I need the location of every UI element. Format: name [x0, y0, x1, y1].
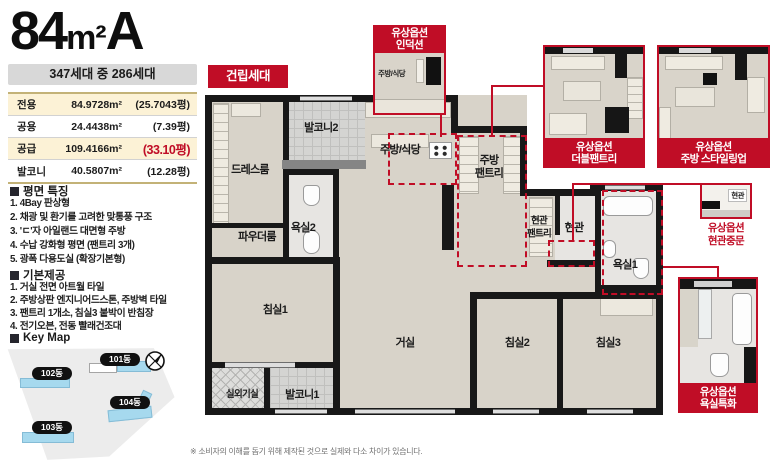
option-panel-induction: 유상옵션 인덕션 주방/식당 [373, 25, 446, 115]
area-value: 24.4438m² [61, 121, 122, 133]
wall [555, 195, 560, 235]
room-label-bath2: 욕실2 [291, 222, 315, 235]
section-bullet-icon [10, 271, 19, 280]
option-thumbnail: 현관 [702, 185, 750, 217]
wall [333, 257, 340, 415]
area-label: 공급 [8, 141, 61, 156]
wall [470, 292, 477, 415]
table-row: 공급 109.4166m² (33.10평) [8, 138, 197, 160]
wall [211, 223, 283, 228]
building-pill-103: 103동 [32, 421, 72, 434]
list-item: 2. 주방상판 엔지니어드스톤, 주방벽 타일 [10, 294, 167, 307]
wall [264, 368, 270, 415]
window [225, 362, 295, 368]
key-map: 101동 102동 104동 103동 [6, 347, 178, 461]
option-thumbnail [545, 47, 643, 140]
unit-type: A [106, 1, 143, 61]
area-label: 발코니 [8, 164, 61, 179]
building-pill-102: 102동 [32, 367, 72, 380]
thumb-shower [698, 289, 712, 339]
option-label-line1: 유상옵션 [543, 141, 645, 154]
option-label-line2: 욕실특화 [678, 398, 758, 411]
list-item: 5. 광폭 다용도실 (확장기본형) [10, 253, 152, 267]
disclaimer-text: ※ 소비자의 이해를 돕기 위해 제작된 것으로 실제와 다소 차이가 있습니다… [190, 446, 422, 457]
room-label-bed1: 침실1 [263, 304, 287, 317]
list-item: 3. 'ㄷ'자 아일랜드 대면형 주방 [10, 225, 152, 239]
built-households-label: 건립세대 [208, 65, 288, 88]
thumb-wall [615, 54, 627, 78]
option-panel-double-pantry: 유상옵션 더블팬트리 [543, 45, 645, 168]
option-label-line2: 주방 스타일링업 [657, 153, 770, 166]
option-label-middle-door: 유상옵션 현관중문 [684, 222, 768, 247]
building-pill-104: 104동 [110, 396, 150, 409]
area-label: 전용 [8, 97, 61, 112]
thumb-toilet [710, 353, 729, 377]
option-label-line1: 유상옵션 [657, 141, 770, 154]
thumb-floor [702, 210, 750, 217]
thumb-furniture [747, 77, 765, 113]
thumb-furniture [659, 107, 671, 140]
area-label: 공용 [8, 119, 61, 134]
room-label-kitchen: 주방/식당 [380, 144, 420, 157]
thumb-wall [735, 54, 747, 80]
thumb-wall [744, 347, 756, 385]
option-panel-styling-up: 유상옵션 주방 스타일링업 [657, 45, 770, 168]
building-pill-101: 101동 [100, 353, 140, 366]
thumb-counter [665, 56, 723, 70]
connector-line [663, 266, 719, 268]
connector-line [491, 85, 493, 137]
wall [557, 292, 563, 415]
dressroom-closet [231, 103, 261, 117]
thumb-window [679, 48, 711, 53]
area-pyeong-highlight: (33.10평) [122, 139, 197, 158]
wall [283, 169, 339, 175]
thumb-window [694, 281, 732, 287]
room-label-balcony2: 발코니2 [304, 122, 338, 135]
option-panel-middle-door: 현관 [700, 183, 752, 219]
thumb-bathtub [732, 293, 752, 345]
unit-size: 84 [10, 1, 66, 61]
table-row: 공용 24.4438m² (7.39평) [8, 116, 197, 138]
area-value: 109.4166m² [61, 143, 122, 155]
area-value: 84.9728m² [61, 99, 122, 111]
room-label-balcony1: 발코니1 [285, 389, 319, 402]
thumb-pantry-shelf [627, 77, 643, 119]
option-label: 유상옵션 주방 스타일링업 [657, 138, 770, 168]
option-thumbnail: 주방/식당 [375, 53, 444, 113]
option-label-line2: 인덕션 [373, 39, 446, 52]
option-label: 유상옵션 욕실특화 [678, 383, 758, 413]
unit-sqm: m² [66, 19, 106, 57]
option-label: 유상옵션 인덕션 [373, 25, 446, 53]
thumb-wall [545, 47, 643, 54]
keymap-title: Key Map [23, 332, 70, 344]
table-row: 전용 84.9728m² (25.7043평) [8, 94, 197, 116]
window [300, 96, 352, 101]
room-label-bed3: 침실3 [596, 337, 620, 350]
thumb-island [563, 81, 601, 101]
thumb-label: 현관 [728, 189, 747, 202]
thumb-counter [551, 56, 605, 70]
kitchen-option-zone [388, 133, 457, 185]
window [275, 409, 327, 414]
area-pyeong: (12.28평) [122, 164, 197, 179]
thumb-wall [605, 107, 629, 133]
connector-line [572, 183, 702, 185]
table-row: 발코니 40.5807m² (12.28평) [8, 160, 197, 182]
wall [283, 95, 289, 263]
window [355, 409, 455, 414]
room-label-kitchen-pantry: 주방 팬트리 [475, 155, 503, 180]
basics-list: 1. 거실 전면 아트월 타일 2. 주방상판 엔지니어드스톤, 주방벽 타일 … [10, 281, 167, 333]
wall [451, 126, 527, 133]
connector-line [491, 85, 545, 87]
room-label-bath1: 욕실1 [613, 259, 637, 272]
list-item: 1. 거실 전면 아트월 타일 [10, 281, 167, 294]
list-item: 1. 4Bay 판상형 [10, 197, 152, 211]
floorplan-brochure: 84m²A 347세대 중 286세대 전용 84.9728m² (25.704… [0, 0, 773, 463]
area-value: 40.5807m² [61, 165, 122, 177]
unit-title: 84m²A [10, 2, 143, 67]
compass-icon [143, 349, 167, 373]
bath1-option-zone [602, 190, 663, 295]
room-label-dressroom: 드레스룸 [231, 164, 269, 177]
thumb-counter [375, 99, 444, 113]
window [587, 409, 633, 414]
thumb-island [675, 87, 715, 107]
household-band: 347세대 중 286세대 [8, 64, 197, 85]
thumb-induction [426, 57, 441, 85]
area-table: 전용 84.9728m² (25.7043평) 공용 24.4438m² (7.… [8, 92, 197, 184]
option-thumbnail [680, 279, 756, 385]
thumb-label: 주방/식당 [378, 68, 405, 79]
area-pyeong: (25.7043평) [122, 97, 197, 112]
bed3-closet [600, 298, 653, 316]
option-label-line1: 유상옵션 [684, 222, 768, 235]
area-pyeong: (7.39평) [122, 119, 197, 134]
connector-line [572, 183, 574, 241]
wall-window-bar [282, 160, 366, 169]
option-label-line1: 유상옵션 [678, 386, 758, 399]
list-item: 2. 채광 및 환기를 고려한 맞통풍 구조 [10, 211, 152, 225]
room-label-entry-pantry: 현관 팬트리 [527, 216, 551, 241]
thumb-floor [680, 289, 698, 347]
keymap-header: Key Map [10, 332, 70, 344]
thumb-window [563, 48, 593, 53]
option-label-line2: 현관중문 [684, 235, 768, 248]
room-label-living: 거실 [396, 337, 415, 350]
thumb-induction [703, 73, 717, 85]
features-list: 1. 4Bay 판상형 2. 채광 및 환기를 고려한 맞통풍 구조 3. 'ㄷ… [10, 197, 152, 267]
wall [333, 169, 339, 267]
thumb-wall [659, 47, 768, 54]
thumb-furniture [416, 59, 424, 83]
thumb-wall [702, 201, 720, 209]
section-bullet-icon [10, 187, 19, 196]
option-panel-bath-special: 유상옵션 욕실특화 [678, 277, 758, 413]
wall [470, 292, 563, 299]
thumb-counter [549, 113, 587, 135]
room-label-outdoor-unit: 실외기실 [226, 389, 258, 402]
section-bullet-icon [10, 334, 19, 343]
room-label-powder: 파우더룸 [238, 231, 276, 244]
window [493, 409, 539, 414]
entry-option-zone [548, 240, 595, 267]
toilet-icon [303, 185, 320, 206]
option-label-line1: 유상옵션 [373, 27, 446, 40]
connector-line [440, 113, 442, 137]
option-label: 유상옵션 더블팬트리 [543, 138, 645, 168]
option-label-line2: 더블팬트리 [543, 153, 645, 166]
room-label-bed2: 침실2 [505, 337, 529, 350]
option-thumbnail [659, 47, 768, 140]
dressroom-closet [213, 103, 229, 227]
wall [205, 257, 340, 264]
wall [595, 190, 601, 290]
room-label-entry: 현관 [565, 222, 584, 235]
list-item: 4. 수납 강화형 평면 (팬트리 3개) [10, 239, 152, 253]
wall [442, 185, 454, 250]
list-item: 3. 팬트리 1개소, 침실3 붙박이 반침장 [10, 307, 167, 320]
